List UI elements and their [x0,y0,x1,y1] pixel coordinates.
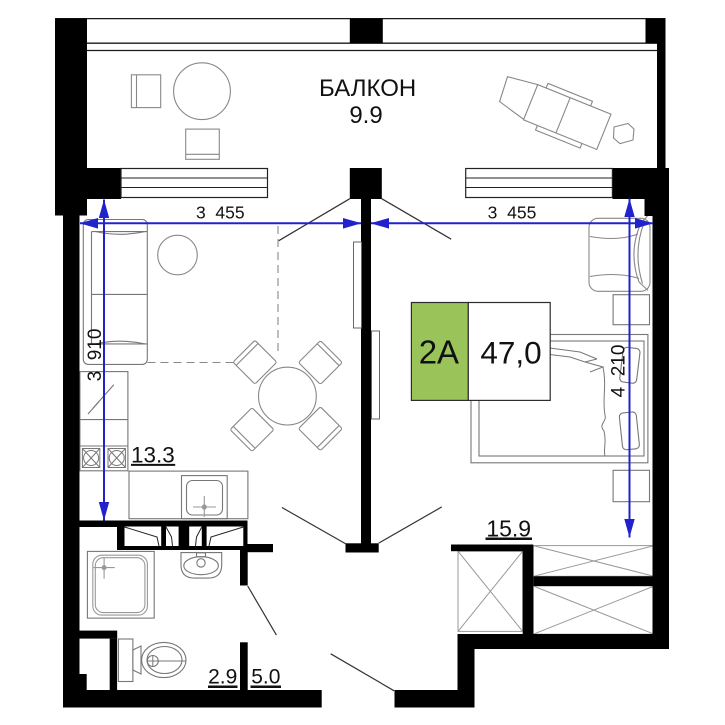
svg-text:3 455: 3 455 [196,203,245,223]
svg-text:3 910: 3 910 [85,329,106,382]
svg-text:4 210: 4 210 [609,345,630,398]
svg-text:2.9: 2.9 [208,666,237,689]
svg-text:13.3: 13.3 [131,443,175,468]
svg-text:3 455: 3 455 [488,203,537,223]
svg-text:БАЛКОН: БАЛКОН [319,75,416,102]
svg-text:9.9: 9.9 [349,102,382,129]
svg-text:5.0: 5.0 [251,666,280,689]
svg-text:2A: 2A [419,334,459,371]
svg-text:47,0: 47,0 [480,335,541,371]
